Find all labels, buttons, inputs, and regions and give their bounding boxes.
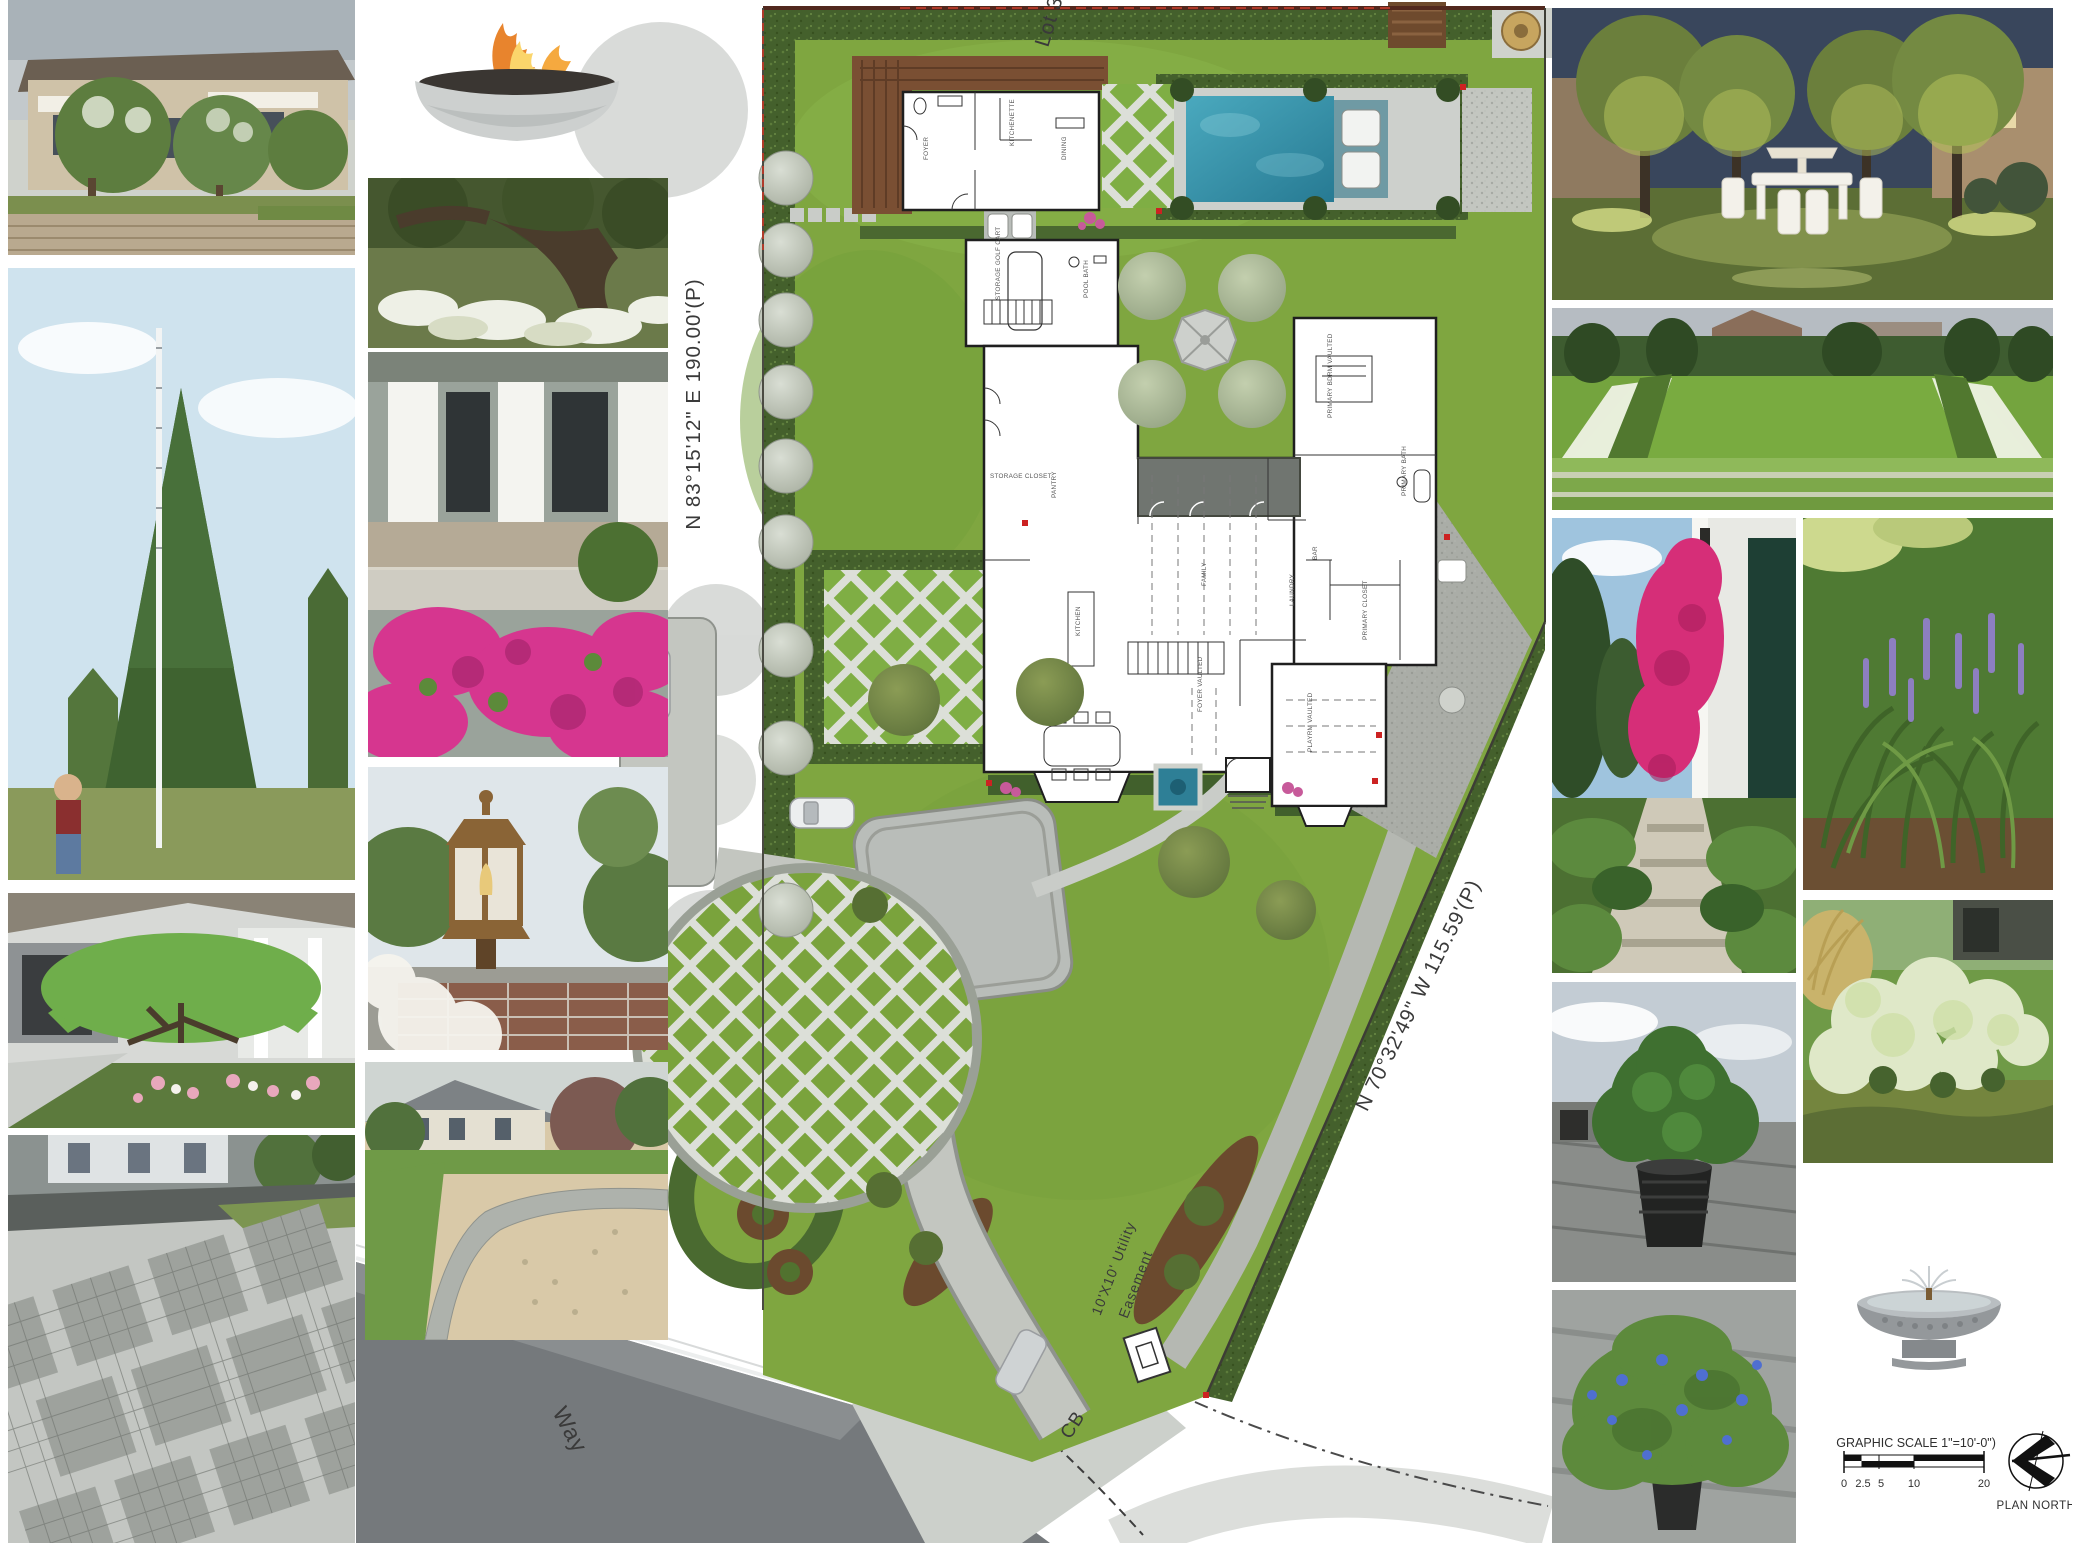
scale-tick-0: 0 xyxy=(1841,1478,1847,1490)
room-kitchenette: KITCHENETTE xyxy=(1009,99,1016,146)
photo-limelight-hydrangea xyxy=(1803,900,2053,1163)
scale-tick-10: 10 xyxy=(1908,1478,1920,1490)
photo-cobble-grid-driveway xyxy=(8,1135,355,1543)
room-primary-bedroom: PRIMARY BDRM VAULTED xyxy=(1327,333,1334,418)
photo-specimen-evergreen xyxy=(8,268,355,880)
room-dining: DINING xyxy=(1061,136,1068,160)
photo-live-oak-azaleas xyxy=(368,178,668,348)
plan-north-label: PLAN NORTH xyxy=(1997,1500,2072,1512)
dining-bay xyxy=(1034,772,1130,802)
room-playroom: PLAYRM VAULTED xyxy=(1307,692,1314,752)
photo-formal-lawn xyxy=(1552,308,2053,510)
guest-house xyxy=(903,92,1099,210)
photo-dome-pruned-tree xyxy=(8,893,355,1128)
photo-gas-lantern xyxy=(368,767,668,1050)
pool-water xyxy=(1186,96,1334,202)
photo-bougainvillea-path xyxy=(1552,518,1796,973)
room-family: FAMILY xyxy=(1201,562,1208,586)
golf-cart xyxy=(1008,252,1042,330)
room-kitchen: KITCHEN xyxy=(1075,606,1082,636)
room-laundry: LAUNDRY xyxy=(1289,573,1296,606)
presentation-board: Lot 32 N 83°15'12" E 190.00'(P) N 70°32'… xyxy=(0,0,2080,1543)
photo-pea-gravel-court xyxy=(365,1062,668,1340)
photo-evening-garden xyxy=(1552,8,2053,300)
legend: (GRAPHIC SCALE 1"=10'-0") 0 2.5 5 10 20 … xyxy=(1836,1425,2072,1537)
scale-tick-2-5: 2.5 xyxy=(1855,1478,1870,1490)
room-primary-closet: PRIMARY CLOSET xyxy=(1362,580,1369,640)
entry-portico xyxy=(1226,758,1270,792)
car-motor-court xyxy=(790,798,854,828)
scale-tick-5: 5 xyxy=(1878,1478,1884,1490)
photo-laurel-container xyxy=(1552,982,1796,1282)
room-primary-bath: PRIMARY BATH xyxy=(1401,446,1408,496)
photo-fountain-bowl xyxy=(1840,1262,2018,1382)
photo-porch-azaleas xyxy=(368,352,668,757)
scale-bar: 0 2.5 5 10 20 xyxy=(1841,1451,1990,1490)
room-storage-golf-cart: STORAGE GOLF CART xyxy=(995,227,1002,300)
covered-porch xyxy=(1138,458,1300,516)
pool xyxy=(1170,78,1460,220)
photo-plumbago-container xyxy=(1552,1290,1796,1543)
graphic-scale-label: (GRAPHIC SCALE 1"=10'-0") xyxy=(1836,1436,1996,1450)
room-pool-bath: POOL BATH xyxy=(1083,260,1090,298)
photo-house-crape-myrtle xyxy=(8,0,355,255)
room-foyer-vaulted: FOYER VAULTED xyxy=(1197,656,1204,712)
square-fountain xyxy=(1156,766,1200,808)
scale-tick-20: 20 xyxy=(1978,1478,1990,1490)
room-storage-closet: STORAGE CLOSET xyxy=(990,473,1052,480)
north-arrow-icon xyxy=(2009,1431,2070,1491)
room-bar: BAR xyxy=(1312,546,1319,560)
photo-liriope xyxy=(1803,518,2053,890)
photo-fire-bowl xyxy=(375,15,660,165)
room-guest-foyer: FOYER xyxy=(923,137,930,160)
west-bearing-label: N 83°15'12" E 190.00'(P) xyxy=(682,278,705,529)
room-pantry: PANTRY xyxy=(1051,471,1058,498)
